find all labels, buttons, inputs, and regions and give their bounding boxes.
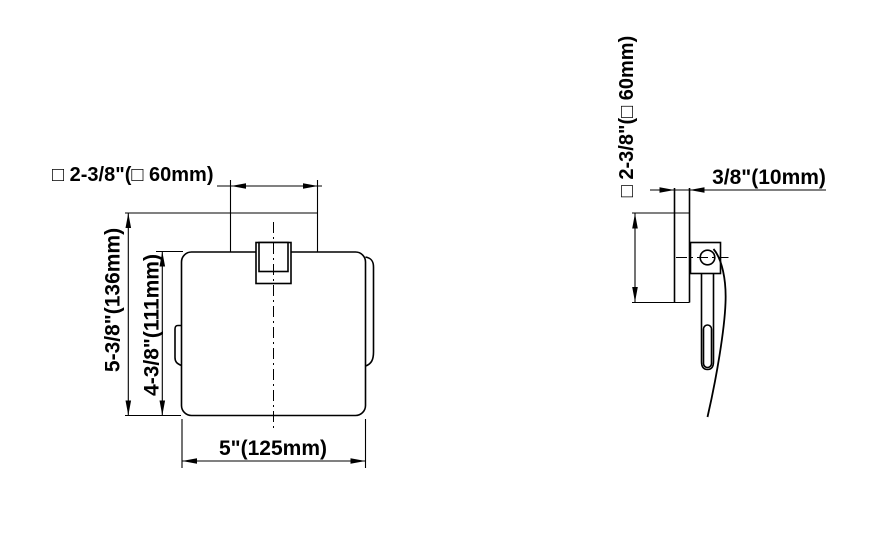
- label-overall-height: 5-3/8"(136mm): [102, 228, 125, 372]
- arrowhead-up: [632, 214, 638, 229]
- dimension-mount-height: □ 2-3/8"(□ 60mm): [616, 36, 690, 303]
- arrowhead-right: [303, 183, 318, 189]
- arrowhead-up: [126, 213, 132, 228]
- front-left-side-tab: [175, 326, 182, 366]
- arrowhead-left: [231, 183, 246, 189]
- arrowhead-down: [126, 401, 132, 416]
- label-mount-height: □ 2-3/8"(□ 60mm): [616, 36, 638, 197]
- side-holder-arm-slot: [704, 325, 712, 368]
- arrowhead-right: [660, 187, 675, 193]
- dimension-plate-depth: 3/8"(10mm): [650, 166, 826, 193]
- arrowhead-left: [690, 187, 705, 193]
- arrowhead-down: [632, 287, 638, 302]
- arrowhead-left: [182, 458, 197, 464]
- front-right-side-flange: [366, 257, 374, 366]
- arrowhead-down: [160, 401, 166, 416]
- label-plate-depth: 3/8"(10mm): [712, 166, 826, 189]
- side-view: □ 2-3/8"(□ 60mm) 3/8"(10mm): [616, 36, 826, 417]
- label-mount-width: □ 2-3/8"(□ 60mm): [52, 164, 213, 186]
- label-holder-height: 4-3/8"(111mm): [141, 254, 164, 396]
- drawing-canvas: □ 2-3/8"(□ 60mm) 5-3/8"(136mm) 4-3/8"(11…: [0, 0, 879, 546]
- technical-drawing: □ 2-3/8"(□ 60mm) 5-3/8"(136mm) 4-3/8"(11…: [0, 0, 879, 546]
- arrowhead-right: [351, 458, 366, 464]
- front-view: □ 2-3/8"(□ 60mm) 5-3/8"(136mm) 4-3/8"(11…: [52, 164, 374, 468]
- label-holder-width: 5"(125mm): [219, 437, 327, 460]
- dimension-mount-width: □ 2-3/8"(□ 60mm): [52, 164, 322, 189]
